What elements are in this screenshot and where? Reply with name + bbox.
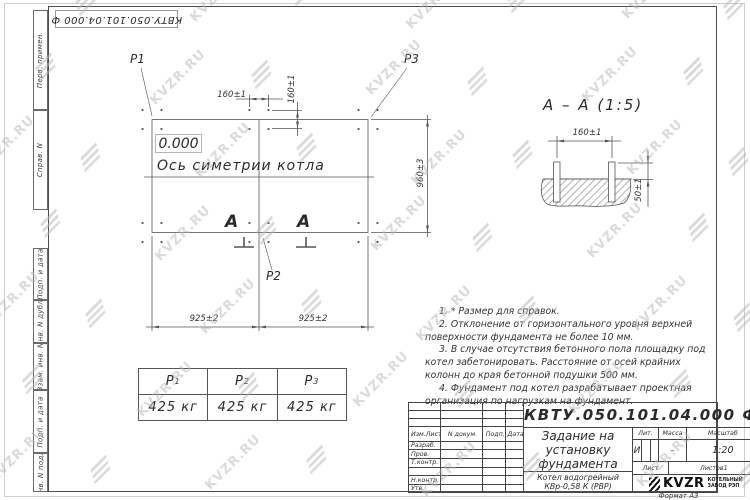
note-2: 2. Отклонение от горизонтального уровня … — [425, 319, 712, 345]
title-block-cell — [441, 485, 484, 492]
margin-cell-label: Инв. N дубл. — [37, 300, 45, 343]
technical-notes: 1. * Размер для справок. 2. Отклонение о… — [425, 306, 712, 408]
title-block-row — [409, 468, 523, 477]
document-name: Задание на установку фундамента — [524, 428, 632, 472]
loads-table-value-row: 425 кг 425 кг 425 кг — [139, 395, 346, 420]
title-block-cell — [506, 411, 523, 418]
dimension-925-left: 925±2 — [182, 314, 226, 324]
title-block-cell: N докум. — [441, 427, 484, 440]
title-block-cell — [483, 450, 506, 458]
company-subtitle-line1: КОТЕЛЬНЫЙ — [708, 478, 743, 483]
company-abbr: KVZR — [663, 476, 705, 491]
company-subtitle-line2: ЗАВОД РЭП — [708, 484, 743, 489]
loads-header-p3: P3 — [278, 369, 346, 394]
loads-value-p2: 425 кг — [208, 395, 277, 420]
title-block-cell — [409, 468, 441, 476]
sheets-cell: Листов 1 — [669, 462, 750, 474]
loads-table: P1 P2 P3 425 кг 425 кг 425 кг — [138, 368, 347, 421]
lit-cell-3 — [651, 440, 659, 461]
lit-label: Лит. — [633, 428, 659, 439]
load-point-label-p1: P1 — [130, 52, 145, 66]
loads-value-p3: 425 кг — [278, 395, 346, 420]
title-block-cell: Изм.Лист — [409, 427, 441, 440]
margin-cell-label: Подп. и дата — [37, 396, 45, 447]
title-block-cell — [506, 403, 523, 410]
section-letter-right: A — [297, 212, 310, 232]
title-block-cell — [441, 403, 484, 410]
title-block-cell — [441, 468, 484, 476]
sheet-count-row: Лист Листов 1 — [633, 462, 750, 475]
title-block-cell — [506, 485, 523, 492]
title-block-cell — [506, 450, 523, 458]
title-block-row: Утв. — [409, 485, 523, 492]
sheets-label: Листов — [700, 465, 724, 472]
company-logo: KVZR КОТЕЛЬНЫЙ ЗАВОД РЭП — [633, 475, 750, 492]
note-3: 3. В случае отсутствия бетонного пола пл… — [425, 344, 712, 382]
title-block-row: Т.контр. — [409, 459, 523, 468]
margin-cell-1: Справ. N — [33, 110, 48, 210]
lit-cell-2 — [642, 440, 651, 461]
level-mark: 0.000 — [155, 134, 202, 153]
margin-cell-label: Справ. N — [37, 143, 45, 177]
title-block-cell — [409, 403, 441, 410]
margin-cell-2: Подп. и дата — [33, 248, 48, 300]
margin-cell-label: Инв. N подл. — [37, 453, 45, 492]
scale-label: Масштаб — [687, 428, 750, 439]
dimension-925-right: 925±2 — [291, 314, 335, 324]
level-mark-value: 0.000 — [158, 136, 198, 152]
note-1: 1. * Размер для справок. — [425, 306, 712, 319]
mass-label: Масса — [659, 428, 687, 439]
load-point-label-p3: P3 — [404, 52, 419, 66]
loads-header-p1: P1 — [139, 369, 208, 394]
title-block-cell — [506, 476, 523, 484]
margin-cell-label: Перв. примен. — [37, 32, 45, 88]
dimension-960: 960±3 — [416, 156, 426, 190]
title-block-cell — [506, 468, 523, 476]
symmetry-axis-label: Ось симетрии котла — [157, 158, 325, 174]
title-block-cell — [483, 476, 506, 484]
drawing-designation: КВТУ.050.101.04.000 Ф — [524, 403, 750, 428]
product-name: Котел водогрейный КВр-0,58 К (РВР) — [524, 472, 632, 492]
margin-cell-4: Взам. инв. N — [33, 343, 48, 390]
lit-mass-scale-header: Лит. Масса Масштаб — [633, 428, 750, 440]
title-block-cell — [483, 403, 506, 410]
plan-view-linework — [141, 68, 431, 331]
lit-mass-scale-values: И – 1:20 — [633, 440, 750, 462]
title-block-cell — [506, 442, 523, 450]
margin-cell-label: Взам. инв. N — [37, 343, 45, 390]
title-block-cell: Т.контр. — [409, 459, 441, 467]
format-note: Формат А3 — [640, 492, 717, 500]
section-dimension-160: 160±1 — [565, 128, 609, 138]
title-block-cell — [441, 411, 484, 418]
lit-value: И — [633, 440, 642, 461]
loads-table-header-row: P1 P2 P3 — [139, 369, 346, 395]
mass-value: – — [659, 440, 687, 461]
title-block-cell — [441, 459, 484, 467]
title-block-cell — [441, 419, 484, 426]
title-block-cell — [506, 419, 523, 426]
title-block-cell — [483, 419, 506, 426]
drawing-sheet: КВТУ.050.101.04.000 Ф — [0, 0, 750, 500]
dimension-160-horizontal: 160±1 — [200, 90, 246, 100]
title-block-cell — [483, 468, 506, 476]
title-block: Изм.ЛистN докум.Подп.ДатаРазраб.Пров.Т.к… — [408, 402, 718, 493]
title-block-cell: Н.контр. — [409, 476, 441, 484]
plan-dimension-arrows — [152, 98, 429, 329]
company-subtitle: КОТЕЛЬНЫЙ ЗАВОД РЭП — [708, 478, 743, 489]
document-name-cell: Задание на установку фундамента Котел во… — [524, 428, 633, 492]
dimension-160-vertical: 160±1 — [287, 73, 297, 105]
section-letter-left: A — [225, 212, 238, 232]
title-block-cell — [483, 459, 506, 467]
scale-value: 1:20 — [687, 440, 750, 461]
title-block-cell — [441, 476, 484, 484]
title-block-cell — [483, 442, 506, 450]
title-block-cell — [441, 450, 484, 458]
title-block-cell: Подп. — [483, 427, 506, 440]
title-block-row — [409, 403, 523, 411]
load-point-label-p2: P2 — [266, 269, 281, 283]
title-block-cell: Утв. — [409, 485, 441, 492]
margin-cell-label: Подп. и дата — [37, 248, 45, 299]
margin-cell-5: Подп. и дата — [33, 390, 48, 453]
title-block-row — [409, 411, 523, 419]
title-block-cell — [483, 411, 506, 418]
title-block-row: Изм.ЛистN докум.Подп.Дата — [409, 427, 523, 441]
margin-cell-6: Инв. N подл. — [33, 453, 48, 492]
sheet-label: Лист — [633, 462, 669, 474]
title-block-signature-grid: Изм.ЛистN докум.Подп.ДатаРазраб.Пров.Т.к… — [409, 403, 524, 492]
loads-value-p1: 425 кг — [139, 395, 208, 420]
title-block-cell — [409, 419, 441, 426]
title-block-row — [409, 419, 523, 427]
title-block-cell — [506, 459, 523, 467]
loads-header-p2: P2 — [208, 369, 277, 394]
title-block-cell: Пров. — [409, 450, 441, 458]
title-block-cell — [441, 442, 484, 450]
title-block-row: Н.контр. — [409, 476, 523, 485]
title-block-cell — [409, 411, 441, 418]
anchor-bolt-dots — [141, 109, 378, 243]
section-view-title: A – A (1:5) — [543, 96, 643, 114]
title-block-cell: Разраб. — [409, 442, 441, 450]
title-block-cell — [483, 485, 506, 492]
title-block-row: Пров. — [409, 450, 523, 459]
company-logo-icon — [649, 476, 660, 492]
title-block-row: Разраб. — [409, 442, 523, 451]
title-block-cell: Дата — [506, 427, 523, 440]
margin-cell-3: Инв. N дубл. — [33, 300, 48, 343]
section-dimension-50: 50±1 — [634, 177, 644, 203]
margin-cell-0: Перв. примен. — [33, 10, 48, 110]
sheets-value: 1 — [724, 465, 728, 472]
